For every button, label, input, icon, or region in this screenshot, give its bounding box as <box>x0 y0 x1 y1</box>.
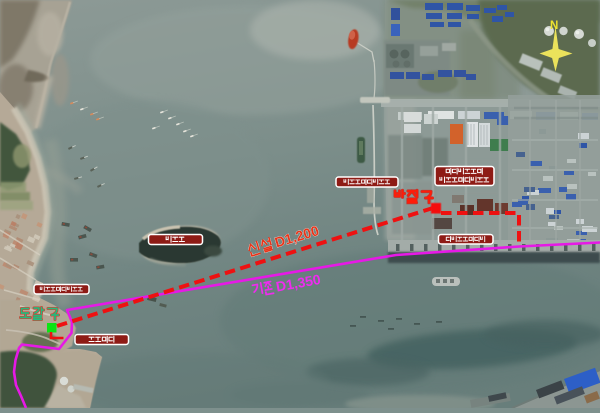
svg-text:N: N <box>550 20 558 32</box>
